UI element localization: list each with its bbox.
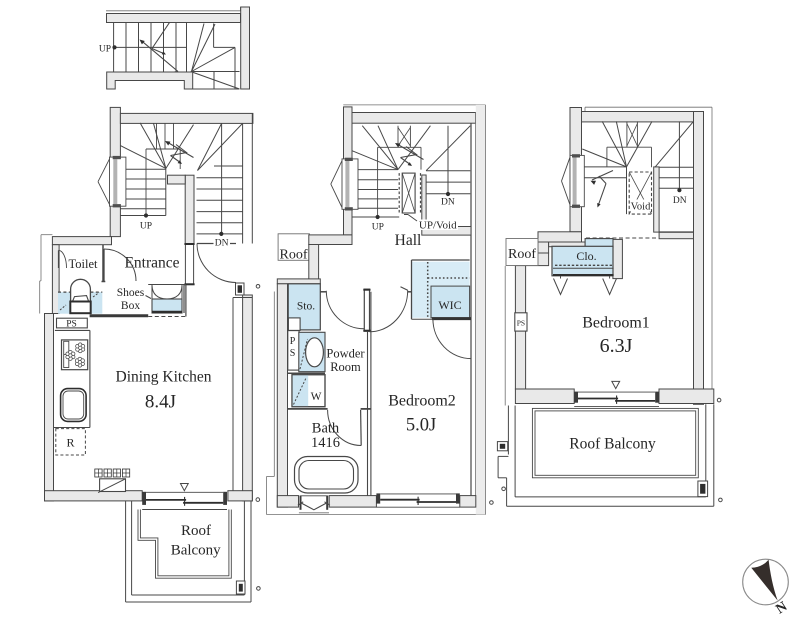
svg-text:6.3J: 6.3J [600, 335, 633, 357]
svg-text:UP: UP [140, 222, 152, 232]
svg-text:PS: PS [66, 319, 77, 329]
svg-text:8.4J: 8.4J [145, 392, 176, 413]
svg-text:Roof: Roof [508, 247, 536, 262]
svg-text:Bath: Bath [312, 421, 340, 437]
svg-text:Roof Balcony: Roof Balcony [569, 436, 656, 453]
svg-text:Roof: Roof [280, 248, 308, 263]
svg-text:Toilet: Toilet [69, 257, 99, 271]
svg-text:Roof: Roof [181, 523, 211, 539]
svg-text:Void: Void [631, 202, 651, 213]
svg-text:UP: UP [99, 45, 111, 55]
svg-text:1416: 1416 [311, 435, 340, 451]
svg-text:Powder: Powder [326, 347, 365, 361]
svg-text:Shoes: Shoes [117, 287, 145, 299]
svg-text:5.0J: 5.0J [406, 416, 436, 436]
svg-text:Balcony: Balcony [171, 543, 221, 559]
svg-text:Bedroom1: Bedroom1 [582, 315, 650, 332]
svg-text:Bedroom2: Bedroom2 [388, 393, 456, 410]
svg-text:S: S [290, 348, 296, 359]
svg-text:R: R [66, 436, 74, 450]
svg-text:UP: UP [372, 223, 384, 233]
svg-text:Hall: Hall [395, 232, 422, 249]
svg-text:Dining Kitchen: Dining Kitchen [116, 369, 212, 386]
svg-text:DN: DN [441, 198, 455, 208]
svg-text:Box: Box [121, 300, 140, 312]
svg-text:Room: Room [330, 360, 361, 374]
svg-text:P: P [290, 336, 296, 347]
svg-text:W: W [311, 391, 322, 403]
svg-text:Clo.: Clo. [576, 249, 596, 263]
svg-text:DN: DN [673, 196, 687, 206]
svg-text:PS: PS [517, 319, 525, 328]
svg-text:WIC: WIC [438, 298, 461, 312]
svg-text:Sto.: Sto. [297, 301, 315, 313]
svg-text:UP/Void: UP/Void [419, 220, 457, 232]
svg-text:Entrance: Entrance [124, 255, 179, 272]
svg-text:DN: DN [215, 239, 229, 249]
